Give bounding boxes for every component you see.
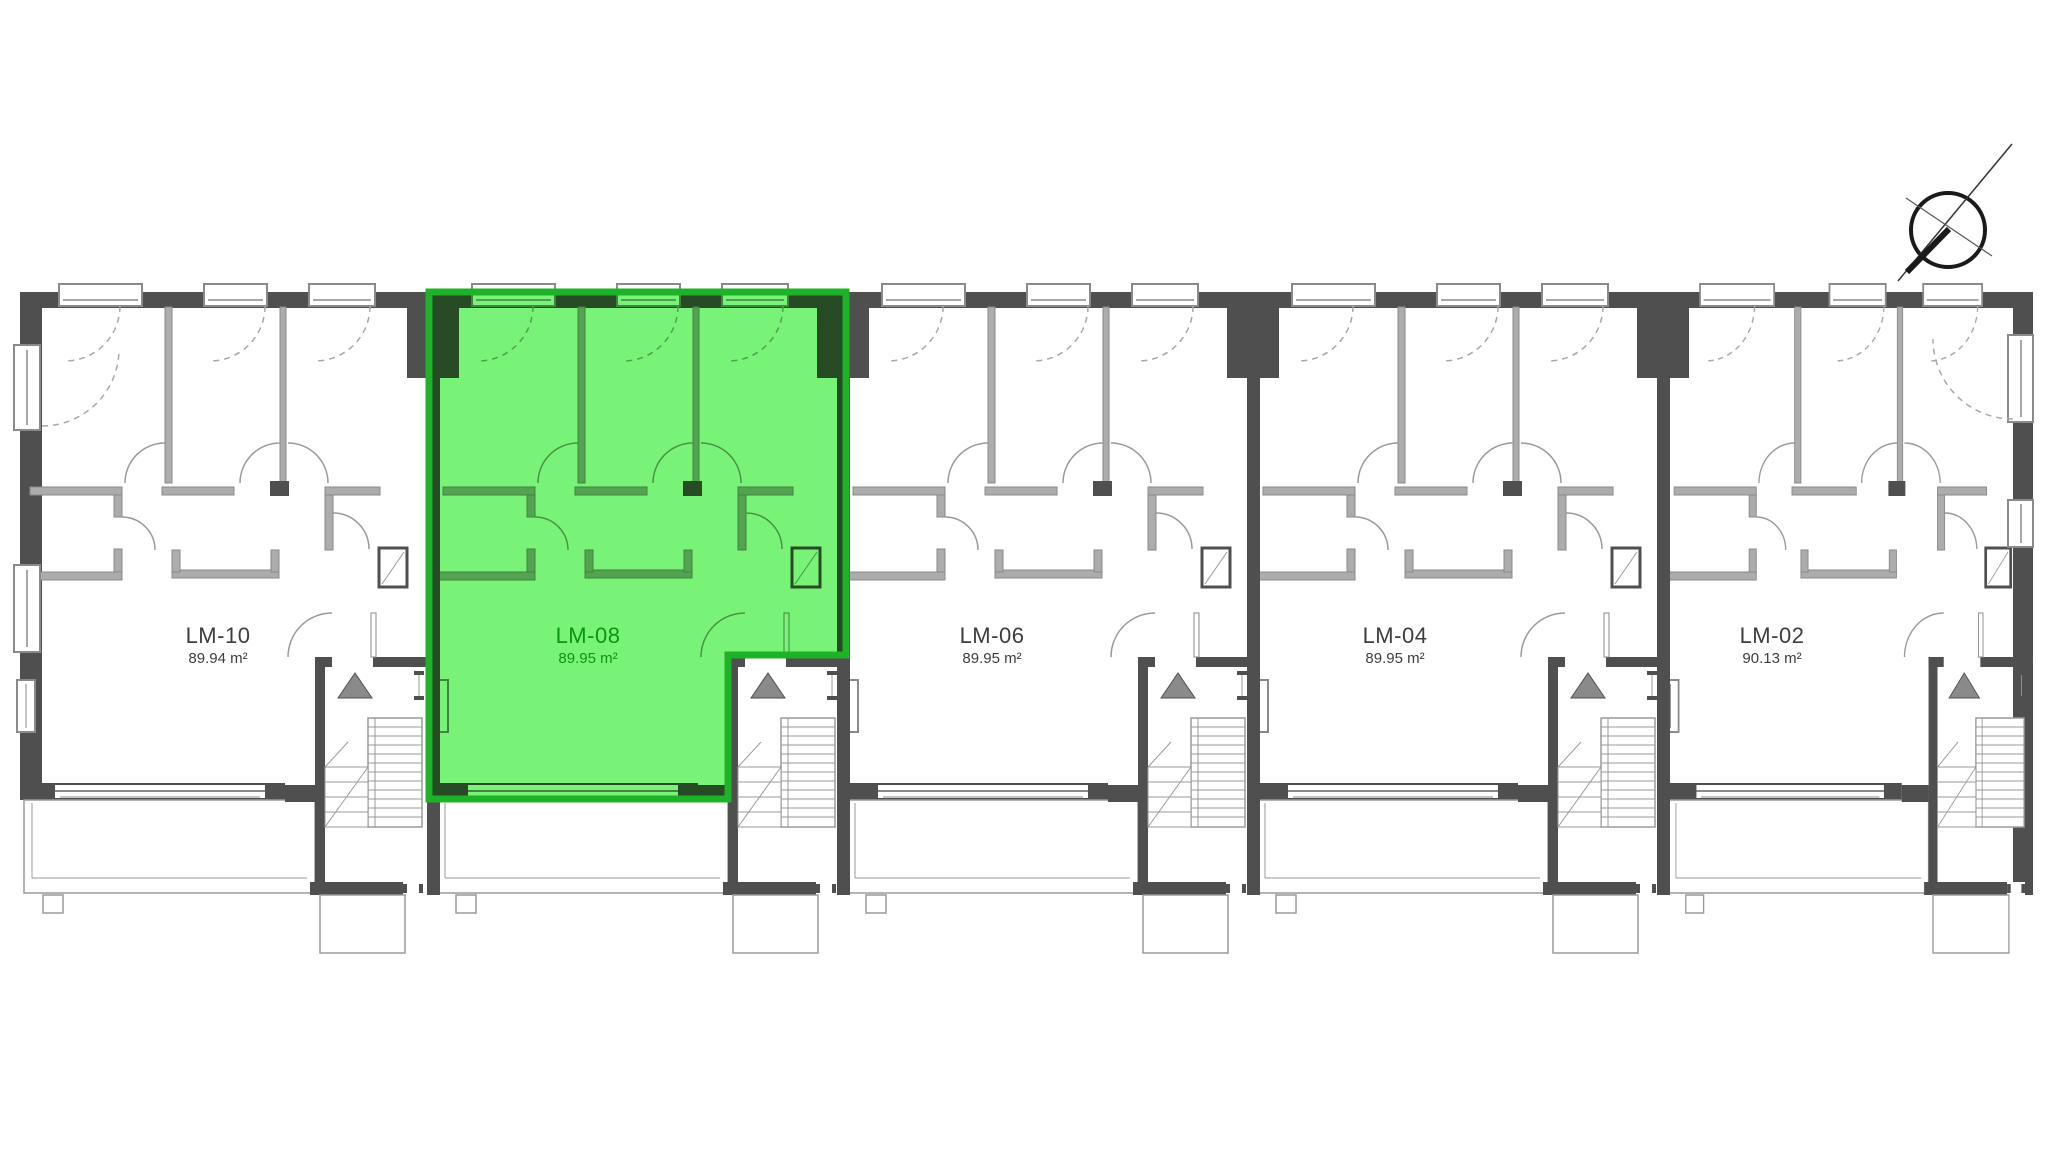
unit-area: 89.95 m²: [1363, 649, 1428, 668]
unit-label-LM-10[interactable]: LM-10 89.94 m²: [186, 622, 251, 668]
unit-name: LM-06: [960, 622, 1025, 650]
floor-plan-page: LM-10 89.94 m² LM-08 89.95 m² LM-06 89.9…: [0, 0, 2048, 1151]
unit-label-LM-06[interactable]: LM-06 89.95 m²: [960, 622, 1025, 668]
unit-name: LM-02: [1740, 622, 1805, 650]
unit-label-LM-04[interactable]: LM-04 89.95 m²: [1363, 622, 1428, 668]
unit-area: 89.94 m²: [186, 649, 251, 668]
unit-area: 90.13 m²: [1740, 649, 1805, 668]
unit-floorplan-LM-10[interactable]: [17, 284, 432, 953]
north-arrow-icon: [1898, 144, 2012, 281]
floor-plan: [0, 0, 2048, 1151]
unit-name: LM-10: [186, 622, 251, 650]
unit-floorplan-LM-06[interactable]: [840, 284, 1255, 953]
unit-name: LM-04: [1363, 622, 1428, 650]
unit-floorplan-LM-04[interactable]: [1250, 284, 1665, 953]
unit-label-LM-08[interactable]: LM-08 89.95 m²: [556, 622, 621, 668]
unit-area: 89.95 m²: [960, 649, 1025, 668]
unit-label-LM-02[interactable]: LM-02 90.13 m²: [1740, 622, 1805, 668]
unit-floorplan-LM-02[interactable]: [1663, 284, 2033, 953]
unit-area: 89.95 m²: [556, 649, 621, 668]
unit-name: LM-08: [556, 622, 621, 650]
